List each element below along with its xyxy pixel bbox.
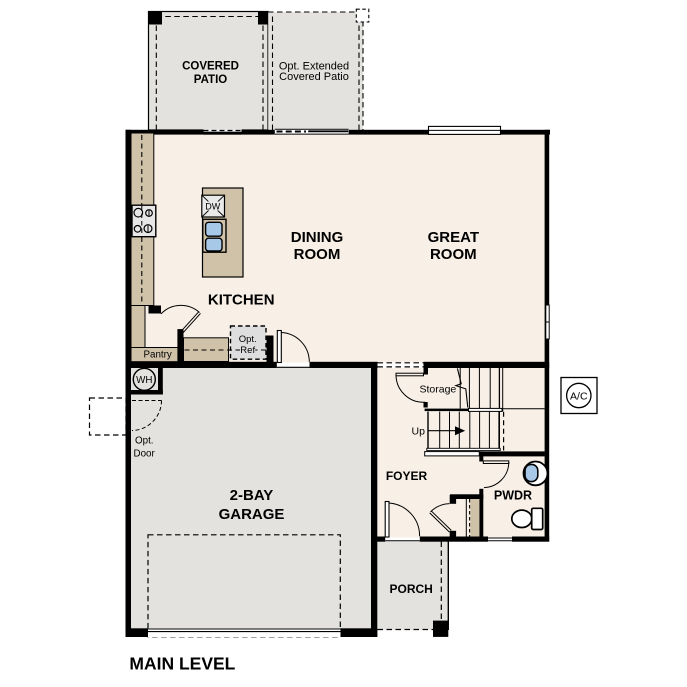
svg-text:GREAT: GREAT	[428, 229, 479, 246]
svg-text:GARAGE: GARAGE	[219, 506, 285, 523]
svg-text:Door: Door	[134, 449, 156, 460]
svg-text:Ref: Ref	[240, 345, 255, 356]
svg-text:DINING: DINING	[291, 229, 344, 246]
svg-text:MAIN LEVEL: MAIN LEVEL	[129, 653, 235, 673]
svg-text:FOYER: FOYER	[386, 469, 428, 483]
svg-text:DW: DW	[205, 202, 220, 212]
svg-text:ROOM: ROOM	[294, 246, 341, 263]
svg-text:PORCH: PORCH	[390, 582, 433, 596]
svg-text:Up: Up	[412, 426, 426, 438]
svg-text:PATIO: PATIO	[194, 74, 227, 86]
svg-text:2-BAY: 2-BAY	[230, 487, 274, 504]
svg-text:ROOM: ROOM	[430, 246, 477, 263]
svg-text:PWDR: PWDR	[494, 489, 532, 503]
svg-text:A/C: A/C	[570, 390, 588, 402]
svg-text:Pantry: Pantry	[144, 349, 172, 360]
svg-text:KITCHEN: KITCHEN	[208, 292, 275, 309]
svg-text:Storage: Storage	[420, 384, 457, 396]
svg-text:WH: WH	[136, 375, 152, 386]
svg-text:Opt.: Opt.	[135, 436, 154, 447]
svg-text:Covered Patio: Covered Patio	[279, 71, 349, 83]
svg-text:Opt.: Opt.	[239, 334, 257, 345]
svg-text:COVERED: COVERED	[182, 60, 239, 72]
